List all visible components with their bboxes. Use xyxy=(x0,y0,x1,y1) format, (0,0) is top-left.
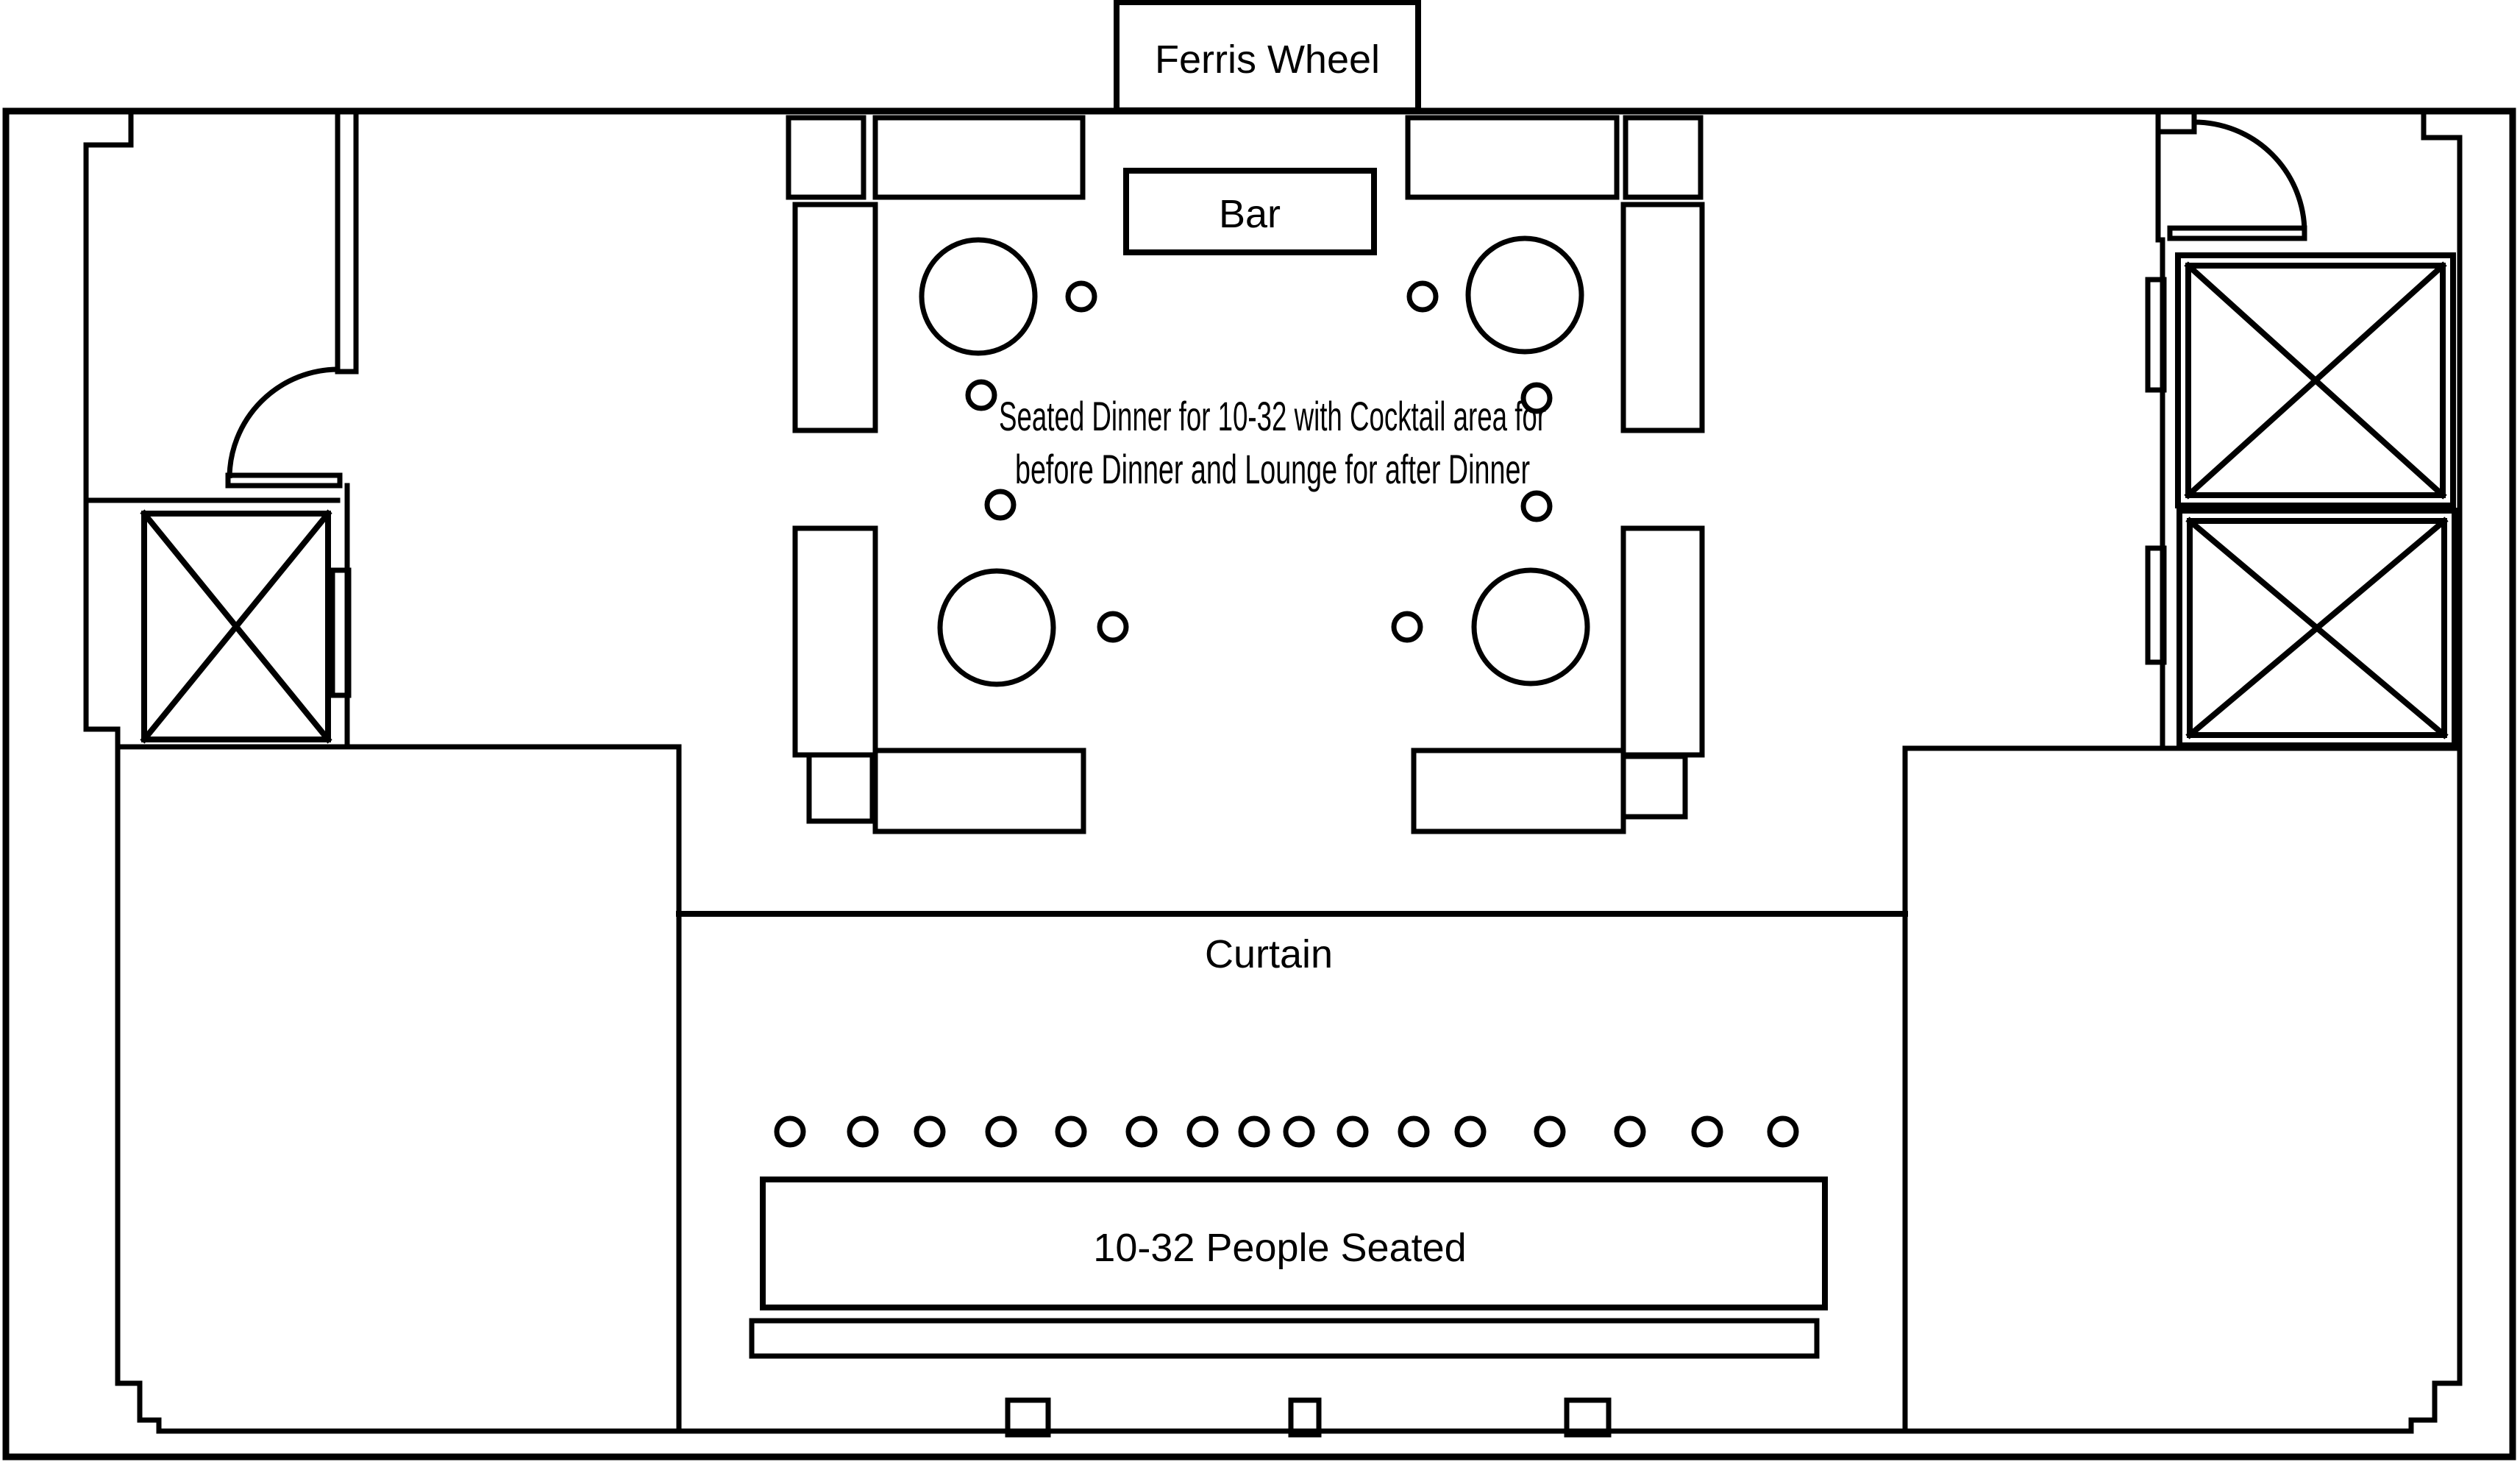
stage-label: 10-32 People Seated xyxy=(1093,1226,1466,1270)
side-table xyxy=(1626,118,1701,197)
center-note-line1: Seated Dinner for 10-32 with Cocktail ar… xyxy=(999,393,1546,439)
sofa-horizontal xyxy=(875,118,1083,197)
sofa-horizontal xyxy=(875,750,1083,831)
ferris-wheel-label: Ferris Wheel xyxy=(1155,38,1380,82)
sofa-vertical xyxy=(795,205,875,430)
ferris-wheel: Ferris Wheel xyxy=(1117,2,1418,110)
sofa-vertical xyxy=(1623,528,1702,755)
sofa-horizontal xyxy=(1408,118,1617,197)
curtain-label: Curtain xyxy=(1205,932,1333,976)
sofa-vertical xyxy=(795,528,875,755)
bar: Bar xyxy=(1126,171,1374,252)
sofa-vertical xyxy=(1623,205,1702,430)
side-table xyxy=(1623,756,1685,817)
bar-label: Bar xyxy=(1219,192,1281,236)
center-note-line2: before Dinner and Lounge for after Dinne… xyxy=(1015,446,1530,492)
side-table xyxy=(789,118,864,197)
floor-plan: Curtain 10-32 People Seated Ferris Wheel xyxy=(0,0,2520,1462)
sofa-horizontal xyxy=(1414,750,1623,831)
side-table xyxy=(809,755,872,821)
